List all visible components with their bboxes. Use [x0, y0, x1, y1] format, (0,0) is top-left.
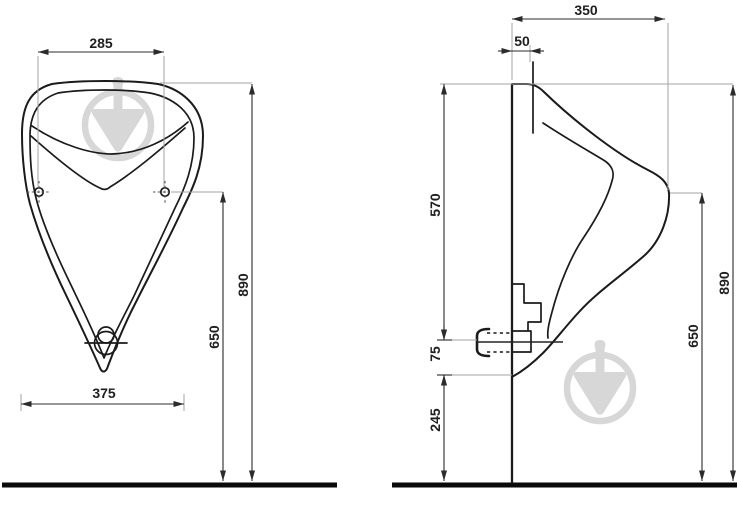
drawing-canvas: 285 890 650 375	[0, 0, 738, 515]
dimension-inlet-offset: 50	[498, 33, 544, 62]
dim-label-375: 375	[92, 385, 116, 401]
dim-label-650: 650	[206, 325, 222, 349]
side-outer-profile	[512, 84, 669, 377]
watermark-logo-icon	[85, 77, 151, 158]
side-inner-bowl-line	[543, 123, 613, 338]
watermark-trowel-blade	[92, 109, 145, 152]
front-view: 285 890 650 375	[21, 35, 252, 481]
drain-circle-small	[98, 327, 114, 343]
dim-label-890: 890	[235, 273, 251, 297]
dimension-outlet-height: 75	[427, 326, 452, 389]
watermark-trowel-blade	[574, 372, 627, 415]
dimension-hole-height-front: 650	[171, 192, 223, 481]
dim-label-570: 570	[427, 193, 443, 217]
dimension-top-to-outlet: 570	[427, 84, 444, 340]
dim-label-245: 245	[427, 408, 443, 432]
dimension-total-height-side: 890	[716, 85, 733, 481]
dim-label-50: 50	[514, 33, 530, 49]
dimension-outlet-to-floor: 245	[427, 375, 444, 481]
dim-label-650: 650	[685, 324, 701, 348]
dimension-depth: 350	[512, 2, 668, 190]
dim-label-75: 75	[427, 346, 443, 362]
dim-label-890: 890	[716, 271, 732, 295]
dim-label-285: 285	[89, 35, 113, 51]
trap-steps	[512, 284, 541, 330]
mounting-hole-left	[27, 181, 51, 204]
dimension-front-edge-height: 650	[685, 193, 702, 481]
watermark-trowel-handle	[595, 340, 606, 374]
dim-label-350: 350	[574, 2, 598, 18]
watermark-logo-icon	[567, 340, 633, 421]
dimension-bottom-width: 375	[21, 385, 184, 411]
dimension-total-height-front: 890	[160, 83, 252, 481]
technical-drawing-urinal: 285 890 650 375	[0, 0, 738, 515]
